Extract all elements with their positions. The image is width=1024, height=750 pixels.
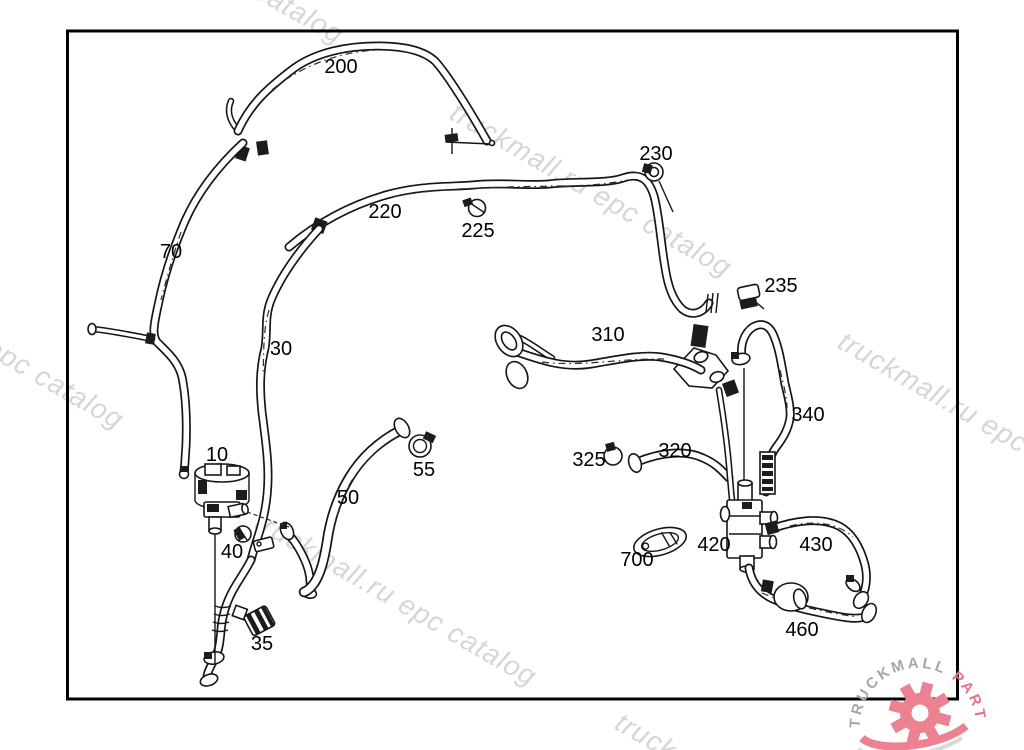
part-label-220: 220	[368, 201, 401, 223]
part-label-460: 460	[785, 619, 818, 641]
clamp-35	[243, 605, 275, 636]
part-label-430: 430	[799, 534, 832, 556]
part-label-200: 200	[324, 56, 357, 78]
hose-220	[289, 176, 718, 313]
part-label-50: 50	[337, 487, 359, 509]
part-label-340: 340	[791, 404, 824, 426]
parts-diagram-page: truckmall.ru epc catalogtruckmall.ru epc…	[0, 0, 1024, 750]
part-label-310: 310	[591, 324, 624, 346]
part-label-325: 325	[572, 449, 605, 471]
diagram-line-art	[88, 46, 879, 688]
watermark-text: truckmall.ru epc catalog	[0, 248, 129, 435]
clamp-225	[462, 197, 485, 216]
part-label-320: 320	[658, 440, 691, 462]
part-label-230: 230	[639, 143, 672, 165]
watermark-text: truckmall.ru epc catalog	[57, 0, 349, 50]
part-label-235: 235	[764, 275, 797, 297]
parts-diagram: truckmall.ru epc catalogtruckmall.ru epc…	[0, 0, 1024, 750]
part-label-420: 420	[697, 534, 730, 556]
hose-200	[229, 46, 487, 162]
watermark-text: truckmall.ru epc catalog	[833, 325, 1024, 512]
hose-30	[251, 229, 319, 560]
part-label-35: 35	[251, 633, 273, 655]
part-label-70: 70	[160, 241, 182, 263]
part-label-30: 30	[270, 338, 292, 360]
watermark-text: truckmall.ru epc catalog	[445, 96, 737, 283]
part-label-40: 40	[221, 541, 243, 563]
bracket-235	[737, 284, 764, 310]
part-label-225: 225	[461, 220, 494, 242]
part-label-55: 55	[413, 459, 435, 481]
hose-340	[731, 325, 790, 502]
part-label-700: 700	[620, 549, 653, 571]
part-label-10: 10	[206, 444, 228, 466]
